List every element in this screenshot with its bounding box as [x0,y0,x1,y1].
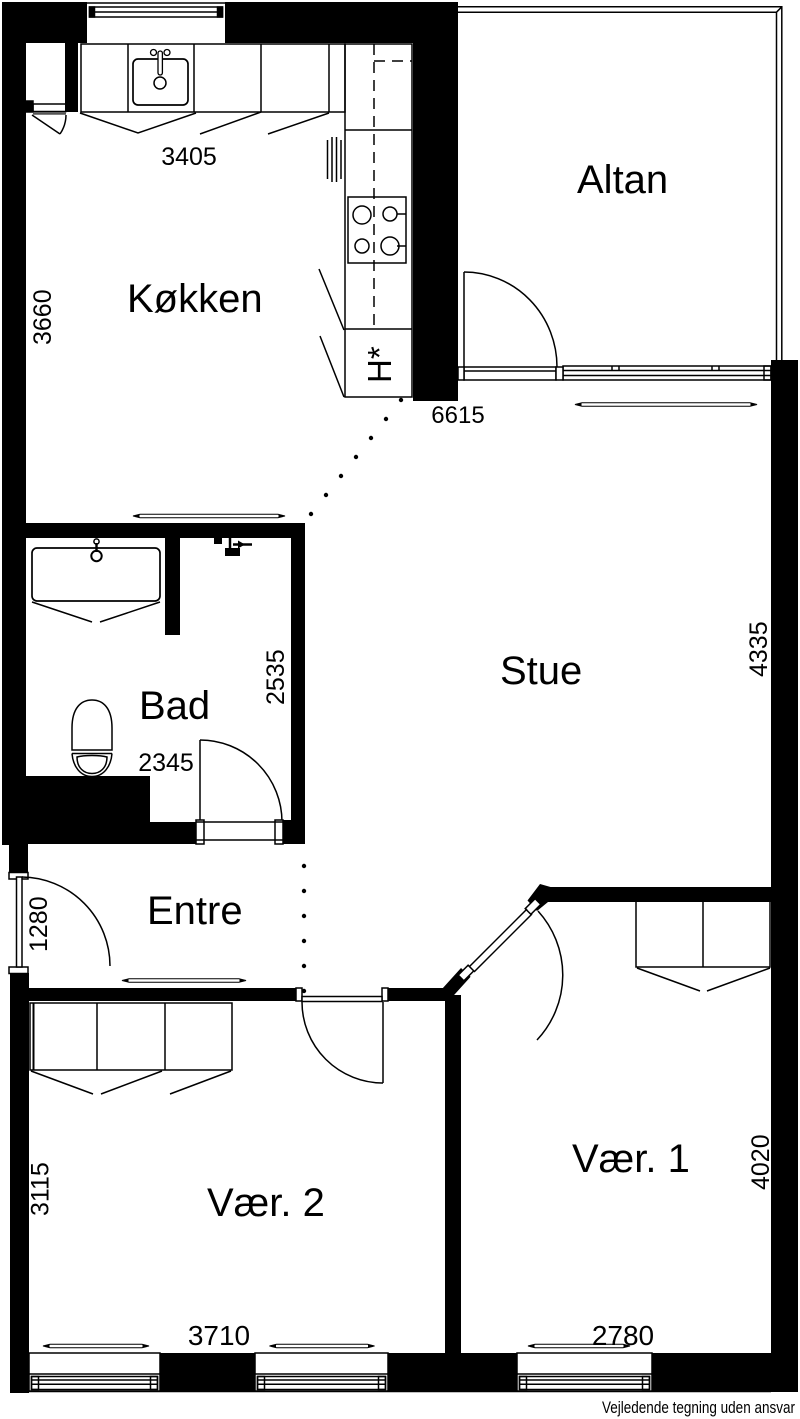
svg-text:2780: 2780 [592,1320,654,1351]
svg-text:Bad: Bad [139,684,210,728]
svg-text:Entre: Entre [147,889,243,933]
svg-text:2345: 2345 [138,749,194,777]
svg-text:Vær. 1: Vær. 1 [572,1137,690,1181]
svg-text:Stue: Stue [500,649,582,693]
svg-text:H*: H* [361,346,398,383]
svg-text:3405: 3405 [161,143,217,171]
svg-text:Køkken: Køkken [127,277,263,321]
svg-text:3660: 3660 [29,289,57,345]
svg-text:3115: 3115 [27,1162,55,1216]
svg-text:2535: 2535 [262,649,290,705]
svg-text:6615: 6615 [431,402,484,429]
svg-text:Altan: Altan [577,158,668,202]
svg-text:3710: 3710 [188,1320,250,1351]
svg-text:1280: 1280 [25,896,53,952]
svg-text:Vejledende tegning uden ansvar: Vejledende tegning uden ansvar [602,1398,795,1417]
svg-text:4020: 4020 [747,1134,775,1190]
svg-text:Vær. 2: Vær. 2 [207,1181,325,1225]
svg-text:4335: 4335 [745,621,773,677]
